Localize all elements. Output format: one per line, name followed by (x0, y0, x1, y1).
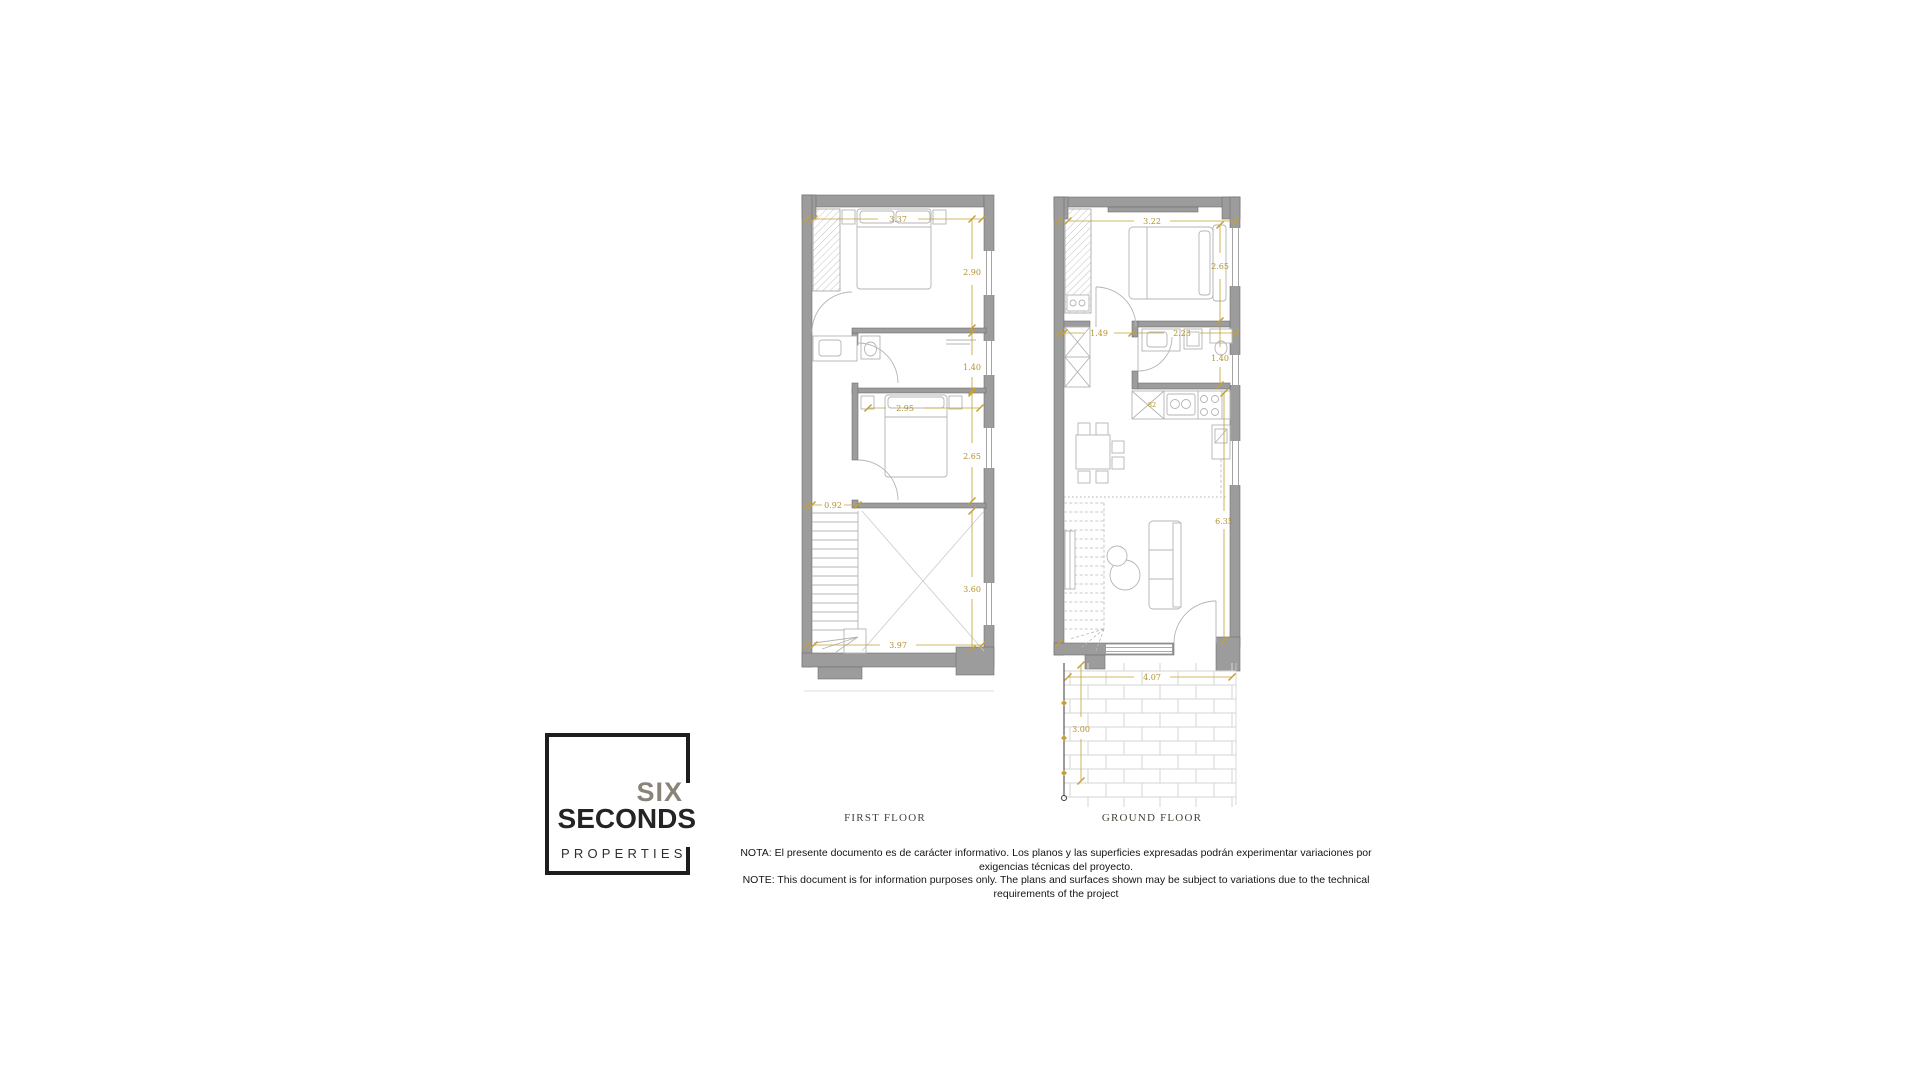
door-arc (812, 292, 852, 332)
bedroom (1065, 209, 1226, 327)
dining-area (1064, 423, 1228, 497)
dim-bedroom-width: 3.22 (1143, 217, 1161, 226)
chair-icon (1096, 423, 1108, 435)
logo-word-seconds: SECONDS (558, 803, 696, 835)
dim-bathroom-depth: 1.40 (1211, 354, 1229, 363)
tiny-annotation (946, 340, 976, 344)
chair-icon (1112, 441, 1124, 453)
ground-floor-plan: 82 (1052, 195, 1242, 807)
page: 3.37 2.90 1.40 2.95 2.65 0.92 3.60 3.97 (0, 0, 1920, 1080)
disclaimer: NOTA: El presente documento es de caráct… (716, 847, 1396, 901)
dim-void-depth: 3.60 (963, 585, 981, 594)
living-area (1107, 521, 1216, 643)
dim-living-depth: 6.35 (1215, 517, 1233, 526)
dim-kitchen-detail: 82 (1148, 401, 1156, 409)
logo-word-properties: PROPERTIES (561, 846, 687, 861)
nightstand-icon (861, 396, 874, 409)
dim-total-width: 3.97 (889, 641, 907, 650)
dim-bathroom-width: 2.23 (1173, 329, 1191, 338)
sink-icon (1147, 332, 1167, 347)
first-floor-plan: 3.37 2.90 1.40 2.95 2.65 0.92 3.60 3.97 (800, 193, 996, 698)
dining-table-icon (1076, 435, 1110, 469)
nightstand-icon (842, 210, 855, 224)
chair-icon (1112, 457, 1124, 469)
nightstand-icon (933, 210, 946, 224)
sink-icon (819, 340, 841, 356)
six-seconds-logo: SIX SECONDS PROPERTIES (545, 733, 690, 875)
void-cross (862, 511, 984, 651)
dim-bedroom1-width: 3.37 (889, 215, 907, 224)
staircase-icon (812, 511, 866, 653)
dim-stair-width: 0.92 (824, 501, 842, 510)
bathroom (813, 336, 976, 383)
brick-paving (1064, 663, 1236, 807)
dim-terrace-depth: 3.00 (1072, 725, 1090, 734)
nightstand-icon (949, 396, 962, 409)
chair-icon (1096, 471, 1108, 483)
dim-bedroom2-width: 2.95 (896, 404, 914, 413)
wardrobe-icon (813, 209, 840, 291)
bedroom1 (812, 209, 946, 332)
ground-floor-label: GROUND FLOOR (1087, 812, 1217, 824)
terrace (1061, 663, 1236, 807)
disclaimer-line-en: NOTE: This document is for information p… (716, 874, 1396, 901)
shafts (1065, 327, 1090, 387)
coffee-table-icon (1107, 546, 1127, 566)
dim-bathroom-depth: 1.40 (963, 363, 981, 372)
dim-bedroom-depth: 2.65 (1211, 262, 1229, 271)
first-floor-label: FIRST FLOOR (820, 812, 950, 824)
dim-hall-width: 1.49 (1090, 329, 1108, 338)
disclaimer-line-es: NOTA: El presente documento es de caráct… (716, 847, 1396, 874)
dim-bedroom2-depth: 2.65 (963, 452, 981, 461)
chair-icon (1078, 471, 1090, 483)
chair-icon (1078, 423, 1090, 435)
kitchen: 82 (1132, 391, 1230, 495)
dim-bedroom1-depth: 2.90 (963, 268, 981, 277)
stairs-under (1064, 503, 1104, 651)
dim-terrace-width: 4.07 (1143, 673, 1161, 682)
